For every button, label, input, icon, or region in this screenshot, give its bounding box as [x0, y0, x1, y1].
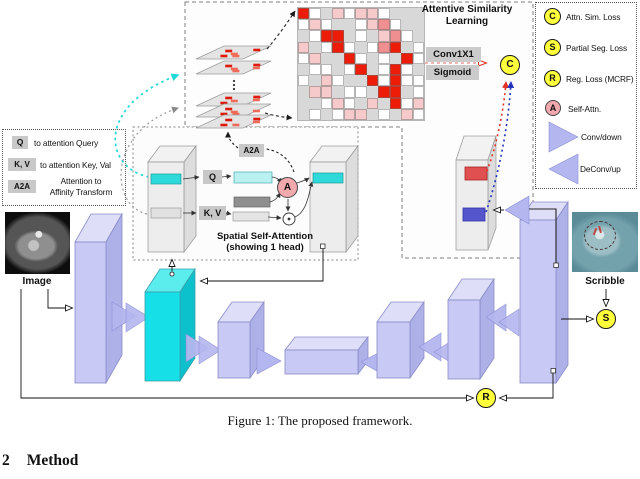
- stack-ellipsis-dots: [233, 80, 235, 90]
- section-heading: 2Method: [2, 452, 78, 470]
- attention-cell: [378, 98, 389, 109]
- attention-cell: [413, 64, 424, 75]
- attention-cell: [367, 75, 378, 86]
- legend-deconv-label: DeConv/up: [580, 164, 621, 174]
- asl-title-line2: Learning: [402, 16, 532, 28]
- attention-cell: [344, 42, 355, 53]
- attention-cell: [321, 98, 332, 109]
- attention-cell: [413, 86, 424, 97]
- attention-cell: [321, 8, 332, 19]
- attention-cell: [332, 42, 343, 53]
- attention-cell: [355, 19, 366, 30]
- attention-cell: [401, 98, 412, 109]
- attention-cell: [332, 8, 343, 19]
- decoder-block-2: [448, 279, 494, 379]
- attention-cell: [378, 42, 389, 53]
- legend-a-label: Self-Attn.: [568, 104, 601, 114]
- attention-cell: [298, 30, 309, 41]
- attention-cell: [355, 8, 366, 19]
- legend-keyvalue-label: to attention Key, Val: [40, 160, 111, 170]
- attention-cell: [355, 75, 366, 86]
- attention-cell: [367, 30, 378, 41]
- encoder-block-1: [75, 214, 122, 383]
- legend-a2a-chip: A2A: [8, 180, 36, 193]
- attention-cell: [332, 64, 343, 75]
- attention-cell: [413, 30, 424, 41]
- scribble-annotation-image: [572, 212, 638, 272]
- attention-cell: [413, 42, 424, 53]
- key-value-chip: K, V: [199, 206, 226, 220]
- figure-caption: Figure 1: The proposed framework.: [0, 413, 640, 429]
- attention-cell: [298, 42, 309, 53]
- ssa-input-cube: [148, 146, 196, 252]
- attention-cell: [344, 53, 355, 64]
- decoder-block-1: [377, 302, 424, 378]
- attention-cell: [390, 98, 401, 109]
- attn-sim-loss-node: C: [500, 55, 520, 75]
- attention-cell: [378, 30, 389, 41]
- attention-cell: [390, 64, 401, 75]
- attention-cell: [401, 75, 412, 86]
- attention-cell: [378, 86, 389, 97]
- attention-cell: [332, 98, 343, 109]
- attention-cell: [378, 109, 389, 120]
- image-to-encoder-line: [48, 289, 72, 308]
- input-mri-image: [5, 212, 70, 274]
- attention-cell: [321, 19, 332, 30]
- attention-cell: [367, 19, 378, 30]
- legend-a2a-label-line2: Affinity Transform: [38, 187, 124, 197]
- attention-cell: [390, 42, 401, 53]
- attention-cell: [321, 75, 332, 86]
- legend-a2a-label-line1: Attention to: [38, 176, 124, 186]
- attention-cell: [390, 86, 401, 97]
- loss-legend-box: [535, 2, 637, 189]
- legend-s-label: Partial Seg. Loss: [566, 43, 627, 53]
- legend-query-chip: Q: [12, 136, 28, 149]
- legend-keyvalue-chip: K, V: [8, 158, 36, 171]
- attention-cell: [367, 8, 378, 19]
- attention-cell: [344, 64, 355, 75]
- attention-cell: [309, 86, 320, 97]
- attention-cell: [378, 19, 389, 30]
- attention-cell: [309, 109, 320, 120]
- key-rod: [234, 197, 270, 207]
- ssa-caption-line2: (showing 1 head): [190, 243, 340, 254]
- attention-cell: [355, 53, 366, 64]
- attention-cell: [332, 53, 343, 64]
- attention-cell: [390, 30, 401, 41]
- output-attended-bar: [313, 173, 343, 183]
- attention-cell: [298, 109, 309, 120]
- attention-cell: [367, 98, 378, 109]
- attention-cell: [355, 64, 366, 75]
- pred-blue-block: [463, 208, 485, 221]
- attention-cell: [309, 19, 320, 30]
- attention-cell: [401, 42, 412, 53]
- attention-cell: [344, 30, 355, 41]
- attention-cell: [344, 19, 355, 30]
- attention-cell: [298, 98, 309, 109]
- attention-tap-anchor: [170, 272, 174, 276]
- sigmoid-chip: Sigmoid: [426, 65, 479, 80]
- attention-cell: [332, 109, 343, 120]
- attention-cell: [401, 109, 412, 120]
- legend-c-node: C: [544, 8, 561, 25]
- attention-cell: [298, 8, 309, 19]
- attention-cell: [298, 64, 309, 75]
- attention-cell: [378, 53, 389, 64]
- dot-product-icon: [283, 213, 295, 225]
- attention-cell: [413, 75, 424, 86]
- attention-cell: [332, 30, 343, 41]
- bottleneck-block: [285, 337, 368, 374]
- query-bar: [151, 174, 181, 184]
- attention-cell: [355, 98, 366, 109]
- key-value-bar: [151, 208, 181, 218]
- attention-cell: [344, 98, 355, 109]
- attention-cell: [309, 8, 320, 19]
- attention-cell: [309, 42, 320, 53]
- attention-cell: [309, 75, 320, 86]
- asl-title-line1: Attentive Similarity: [402, 4, 532, 16]
- attention-cell: [321, 42, 332, 53]
- attention-cell: [344, 86, 355, 97]
- partial-seg-loss-node: S: [596, 309, 616, 329]
- attention-cell: [355, 86, 366, 97]
- self-attention-node: A: [277, 177, 298, 198]
- paper-figure-page: Attentive Similarity Learning Conv1X1 Si…: [0, 0, 640, 479]
- attention-cell: [413, 109, 424, 120]
- attention-cell: [367, 42, 378, 53]
- attention-cell: [401, 64, 412, 75]
- attention-cell: [390, 53, 401, 64]
- attention-cell: [298, 19, 309, 30]
- legend-c-label: Attn. Sim. Loss: [566, 12, 620, 22]
- attention-cell: [344, 8, 355, 19]
- attention-cell: [378, 8, 389, 19]
- attention-cell: [309, 98, 320, 109]
- input-image-label: Image: [3, 276, 71, 287]
- value-rod: [233, 212, 269, 221]
- attention-cell: [298, 53, 309, 64]
- section-title: Method: [27, 452, 79, 469]
- attention-cell: [413, 98, 424, 109]
- attention-cell: [367, 53, 378, 64]
- attention-cell: [332, 75, 343, 86]
- attention-cell: [309, 64, 320, 75]
- attention-cell: [390, 109, 401, 120]
- attention-cell: [321, 109, 332, 120]
- attention-cell: [332, 19, 343, 30]
- attention-cell: [413, 53, 424, 64]
- legend-r-label: Reg. Loss (MCRF): [566, 74, 634, 84]
- attention-cell: [321, 53, 332, 64]
- reg-loss-node: R: [476, 388, 496, 408]
- attention-cell: [309, 53, 320, 64]
- decoder-block-3: [520, 202, 568, 383]
- attention-cell: [321, 86, 332, 97]
- conv-triangles-1: [112, 302, 149, 332]
- attention-cell: [401, 30, 412, 41]
- attention-cell: [355, 109, 366, 120]
- pred-red-block: [465, 167, 487, 180]
- attention-cell: [367, 86, 378, 97]
- legend-a-node: A: [545, 100, 561, 116]
- attention-cell: [309, 30, 320, 41]
- attention-cell: [298, 75, 309, 86]
- attention-cell: [401, 86, 412, 97]
- conv-triangle-3: [257, 348, 281, 374]
- attention-cell: [390, 75, 401, 86]
- attention-feature-block: [145, 269, 195, 381]
- attention-cell: [367, 64, 378, 75]
- attention-cell: [378, 64, 389, 75]
- scribble-label: Scribble: [570, 276, 640, 287]
- attention-cell: [390, 8, 401, 19]
- attention-cell: [332, 86, 343, 97]
- attention-cell: [390, 19, 401, 30]
- attention-cell: [344, 75, 355, 86]
- legend-query-label: to attention Query: [34, 138, 98, 148]
- attention-cell: [378, 75, 389, 86]
- a2a-chip: A2A: [239, 144, 264, 157]
- legend-conv-label: Conv/down: [581, 132, 622, 142]
- query-chip: Q: [203, 170, 222, 184]
- legend-r-node: R: [544, 70, 561, 87]
- attention-cell: [355, 42, 366, 53]
- attention-cell: [298, 86, 309, 97]
- upsample-cube: [456, 136, 496, 250]
- conv1x1-chip: Conv1X1: [426, 47, 481, 62]
- attention-cell: [321, 64, 332, 75]
- attention-cell: [355, 30, 366, 41]
- query-rod: [234, 172, 272, 183]
- attention-cell: [344, 109, 355, 120]
- attention-cell: [401, 53, 412, 64]
- section-number: 2: [2, 452, 10, 469]
- attention-cell: [367, 109, 378, 120]
- legend-s-node: S: [544, 39, 561, 56]
- attention-cell: [321, 30, 332, 41]
